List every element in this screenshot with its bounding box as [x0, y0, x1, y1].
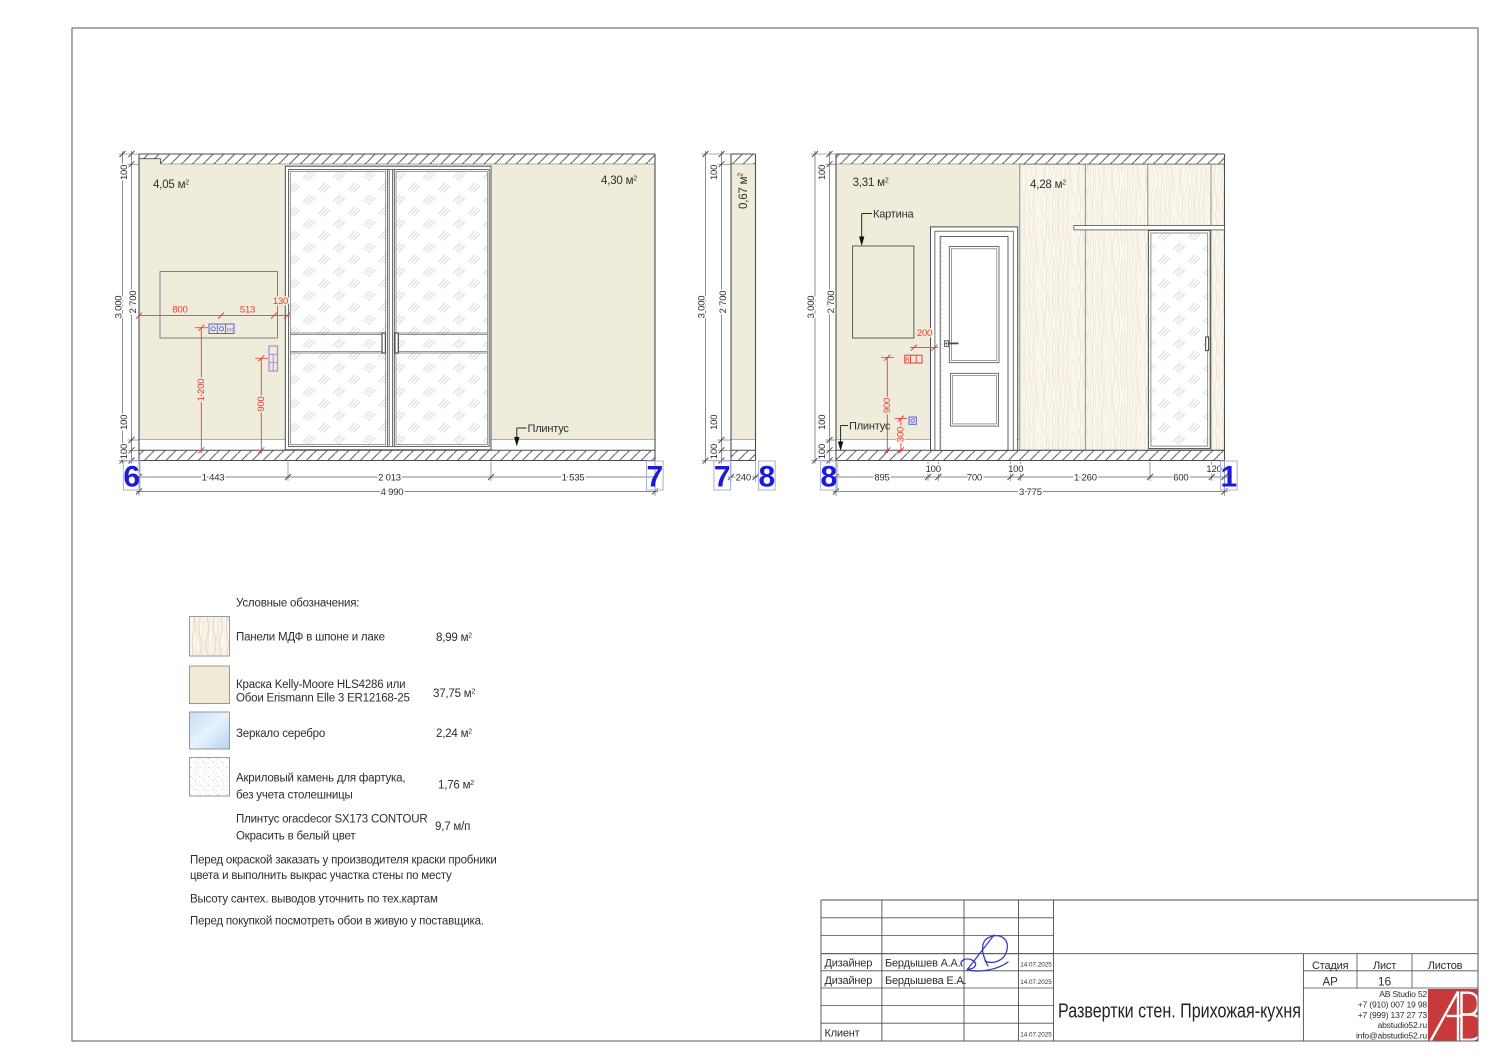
svg-text:14.07.2025: 14.07.2025	[1020, 962, 1052, 969]
svg-text:info@abstudio52.ru: info@abstudio52.ru	[1356, 1031, 1427, 1041]
svg-text:Развертки стен. Прихожая-кухня: Развертки стен. Прихожая-кухня	[1058, 1000, 1301, 1023]
svg-text:513: 513	[240, 304, 255, 315]
svg-text:900: 900	[882, 398, 893, 413]
svg-text:Картина: Картина	[873, 209, 914, 221]
svg-text:100: 100	[119, 165, 130, 180]
svg-text:Краска Kelly-Moore HLS4286 или: Краска Kelly-Moore HLS4286 или	[236, 679, 405, 691]
svg-text:АР: АР	[1323, 977, 1339, 989]
svg-text:7: 7	[714, 461, 731, 494]
svg-text:1 200: 1 200	[196, 379, 207, 402]
svg-text:Зеркало серебро: Зеркало серебро	[236, 728, 325, 740]
svg-text:без учета столешницы: без учета столешницы	[236, 790, 353, 802]
svg-text:0,67 м2: 0,67 м2	[737, 173, 750, 209]
svg-text:1 443: 1 443	[202, 473, 225, 484]
svg-text:Плинтус: Плинтус	[849, 421, 891, 433]
svg-text:+7 (910) 007 19 98: +7 (910) 007 19 98	[1358, 999, 1428, 1009]
svg-text:Окрасить в белый цвет: Окрасить в белый цвет	[236, 831, 356, 843]
svg-text:100: 100	[709, 415, 720, 430]
svg-text:9,7 м/п: 9,7 м/п	[435, 821, 470, 833]
svg-text:4,30 м2: 4,30 м2	[601, 175, 637, 187]
svg-text:700: 700	[967, 473, 982, 484]
svg-text:200: 200	[917, 328, 932, 339]
svg-text:Дизайнер: Дизайнер	[825, 958, 873, 970]
svg-text:2,24 м2: 2,24 м2	[436, 728, 472, 740]
svg-text:895: 895	[874, 473, 889, 484]
svg-text:600: 600	[1173, 473, 1188, 484]
svg-text:Int: Int	[227, 328, 234, 334]
svg-text:100: 100	[926, 464, 941, 475]
svg-text:цвета и выполнить выкрас участ: цвета и выполнить выкрас участка стены п…	[190, 870, 452, 882]
svg-text:Плинтус oracdecor SX173 CONTOU: Плинтус oracdecor SX173 CONTOUR	[236, 814, 428, 826]
svg-text:Бердышев А.А.: Бердышев А.А.	[885, 958, 961, 970]
svg-text:37,75 м2: 37,75 м2	[433, 688, 475, 700]
svg-text:4 990: 4 990	[381, 487, 404, 498]
svg-text:Обои Erismann Elle 3 ER12168-2: Обои Erismann Elle 3 ER12168-25	[236, 693, 410, 705]
svg-text:300: 300	[895, 427, 906, 442]
svg-text:Бердышева Е.А.: Бердышева Е.А.	[885, 975, 966, 987]
svg-text:1 535: 1 535	[562, 473, 585, 484]
svg-text:100: 100	[709, 165, 720, 180]
svg-text:Условные обозначения:: Условные обозначения:	[236, 598, 359, 610]
svg-text:Стадия: Стадия	[1312, 960, 1349, 972]
svg-text:2 700: 2 700	[718, 291, 729, 314]
svg-text:4,05 м2: 4,05 м2	[153, 179, 189, 191]
svg-text:3 000: 3 000	[806, 296, 817, 319]
svg-text:3 775: 3 775	[1019, 487, 1042, 498]
svg-text:3,31 м2: 3,31 м2	[853, 177, 889, 189]
svg-text:100: 100	[1008, 464, 1023, 475]
svg-text:8: 8	[821, 461, 838, 494]
svg-text:3 000: 3 000	[697, 296, 708, 319]
svg-text:100: 100	[119, 444, 130, 459]
svg-text:800: 800	[172, 304, 187, 315]
svg-text:100: 100	[817, 444, 828, 459]
svg-text:3 000: 3 000	[114, 296, 125, 319]
svg-text:Листов: Листов	[1428, 960, 1463, 972]
svg-text:14.07.2025: 14.07.2025	[1020, 1032, 1052, 1039]
svg-text:AB Studio 52: AB Studio 52	[1379, 989, 1427, 999]
svg-text:8,99 м2: 8,99 м2	[436, 632, 472, 644]
svg-text:900: 900	[256, 396, 267, 411]
svg-text:abstudio52.ru: abstudio52.ru	[1378, 1020, 1428, 1030]
svg-text:Клиент: Клиент	[825, 1028, 860, 1040]
svg-text:7: 7	[646, 461, 663, 494]
svg-text:4,28 м2: 4,28 м2	[1030, 179, 1066, 191]
svg-text:Перед покупкой посмотреть обои: Перед покупкой посмотреть обои в живую у…	[190, 916, 484, 928]
svg-text:1 260: 1 260	[1074, 473, 1097, 484]
svg-text:Высоту сантех. выводов уточнит: Высоту сантех. выводов уточнить по тех.к…	[190, 894, 438, 906]
svg-text:Панели МДФ в шпоне и лаке: Панели МДФ в шпоне и лаке	[236, 632, 385, 644]
svg-text:+7 (999) 137 27 73: +7 (999) 137 27 73	[1358, 1010, 1428, 1020]
svg-text:1,76 м2: 1,76 м2	[438, 780, 474, 792]
svg-text:120: 120	[1206, 464, 1221, 475]
svg-text:16: 16	[1378, 975, 1392, 989]
svg-text:Акриловый камень для фартука,: Акриловый камень для фартука,	[236, 773, 405, 785]
svg-text:100: 100	[817, 415, 828, 430]
svg-text:100: 100	[709, 444, 720, 459]
svg-text:2 013: 2 013	[378, 473, 401, 484]
svg-text:2 700: 2 700	[826, 291, 837, 314]
svg-text:130: 130	[273, 296, 288, 307]
svg-text:100: 100	[119, 415, 130, 430]
svg-text:1: 1	[1221, 461, 1238, 494]
svg-text:240: 240	[736, 473, 751, 484]
svg-text:Лист: Лист	[1373, 960, 1396, 972]
svg-text:2 700: 2 700	[128, 291, 139, 314]
svg-text:8: 8	[759, 461, 776, 494]
svg-text:6: 6	[123, 461, 140, 494]
svg-text:Перед окраской заказать у прои: Перед окраской заказать у производителя …	[190, 855, 497, 867]
svg-text:Плинтус: Плинтус	[528, 423, 570, 435]
svg-text:14.07.2025: 14.07.2025	[1020, 979, 1052, 986]
svg-text:100: 100	[817, 165, 828, 180]
svg-text:Дизайнер: Дизайнер	[825, 975, 873, 987]
svg-text:R: R	[905, 357, 910, 363]
